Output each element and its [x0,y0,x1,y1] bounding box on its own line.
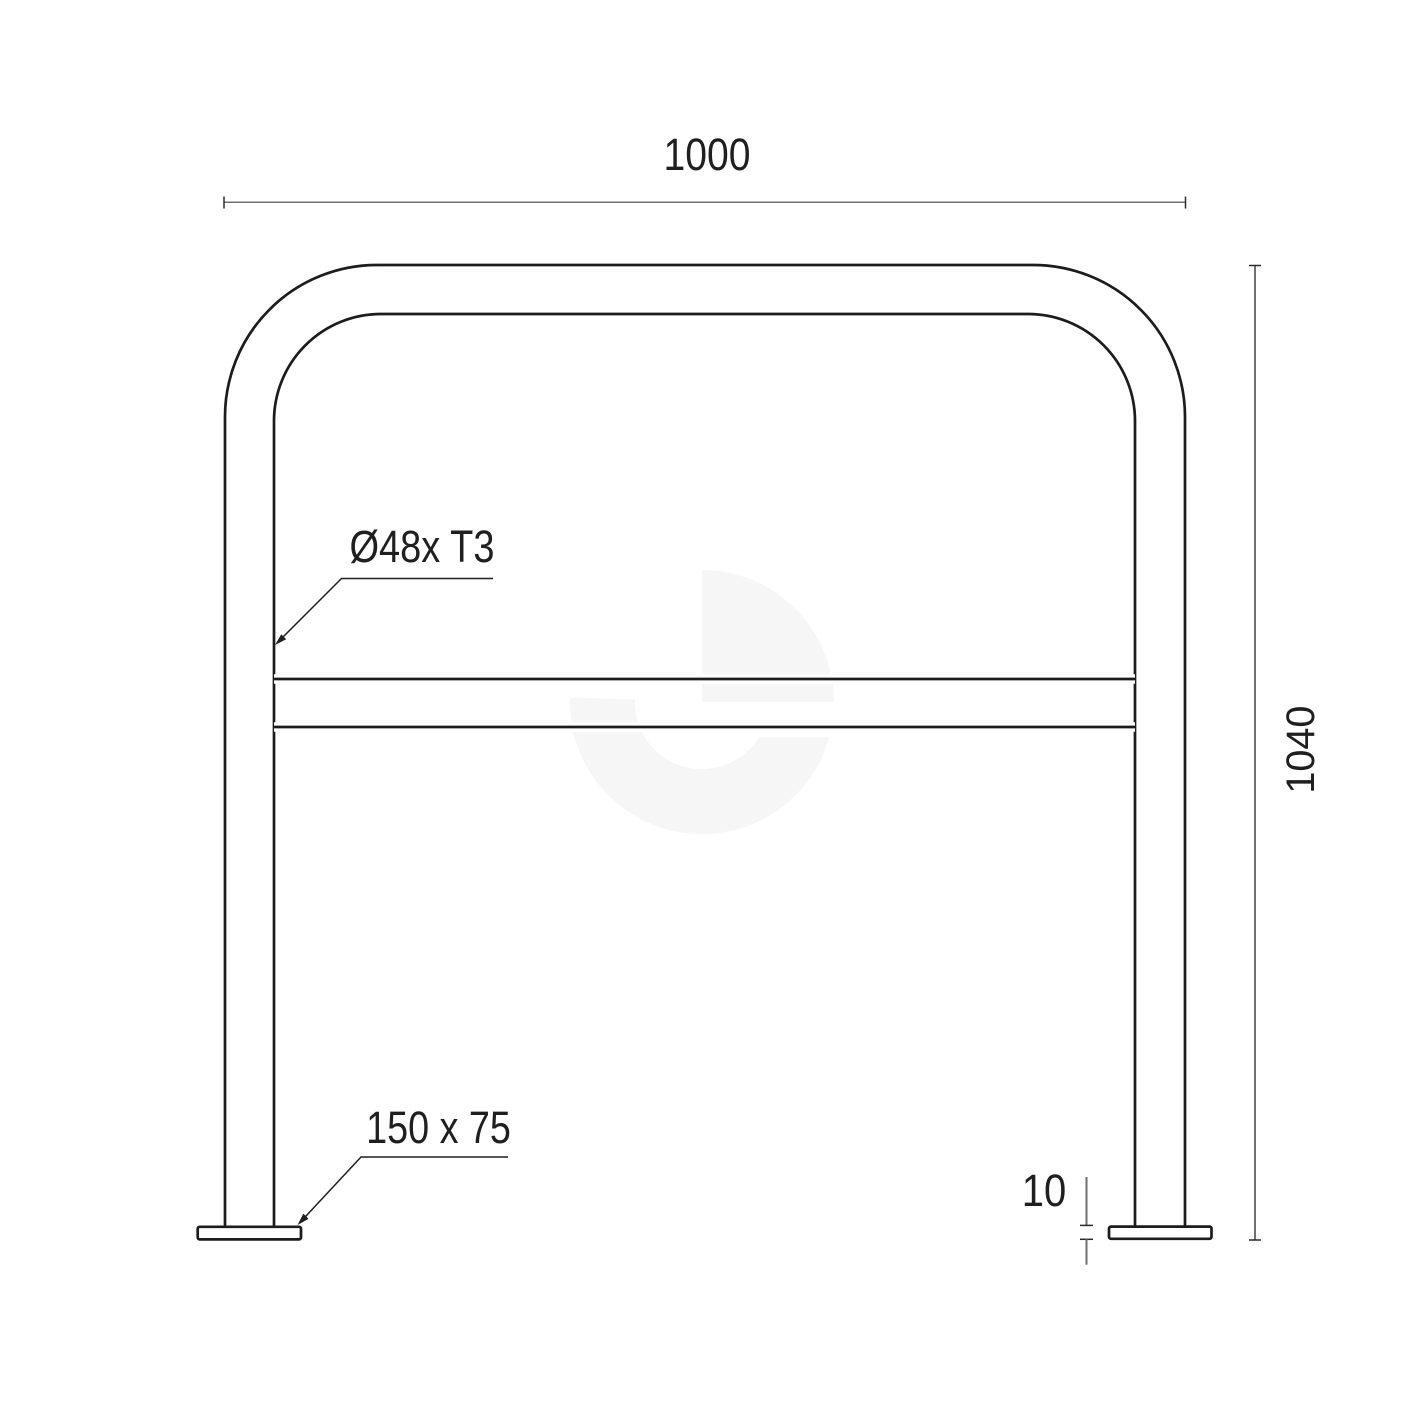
svg-text:1000: 1000 [663,129,750,179]
svg-text:150 x 75: 150 x 75 [366,1102,511,1153]
svg-text:10: 10 [1022,1166,1067,1217]
svg-text:Ø48x T3: Ø48x T3 [350,521,495,572]
svg-text:1040: 1040 [1279,706,1323,794]
